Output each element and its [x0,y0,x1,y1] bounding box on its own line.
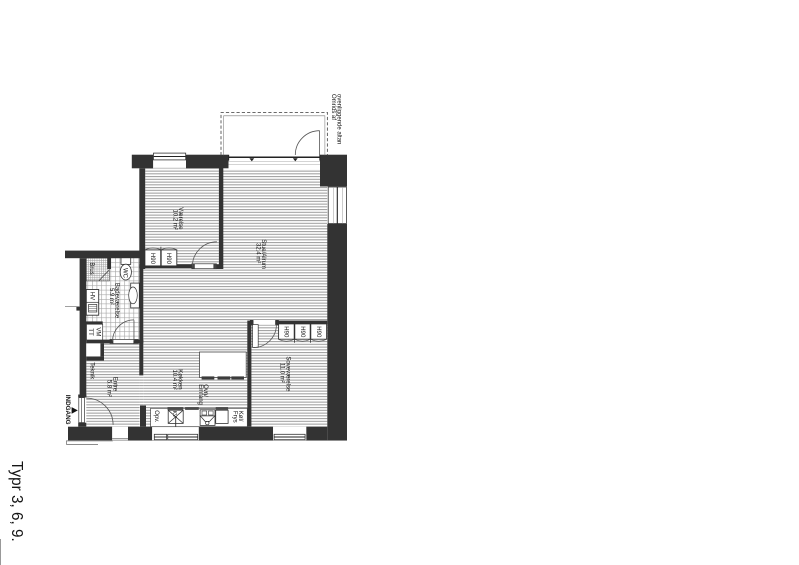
svg-text:Frys: Frys [232,411,238,423]
svg-text:VM: VM [94,327,100,336]
svg-text:10.2 m²: 10.2 m² [172,210,178,230]
svg-text:5.8 m²: 5.8 m² [106,380,112,397]
svg-text:KV: KV [171,411,177,418]
svg-text:H90: H90 [283,326,289,338]
svg-text:ovenliggende altan: ovenliggende altan [336,94,342,144]
svg-text:Emfang: Emfang [197,384,203,405]
svg-text:H90: H90 [149,253,155,265]
svg-text:Typr 3, 6, 9.: Typr 3, 6, 9. [8,461,25,542]
svg-text:TT: TT [87,328,93,336]
svg-text:INDGANG: INDGANG [64,395,71,425]
svg-text:10.4 m²: 10.4 m² [171,370,177,390]
svg-text:Brus: Brus [88,262,94,274]
svg-text:Omrids af: Omrids af [330,94,336,120]
svg-text:H90: H90 [165,253,171,265]
svg-text:WC: WC [122,268,128,279]
svg-text:H90: H90 [315,326,321,338]
svg-text:Opv.: Opv. [153,410,159,423]
svg-text:H90: H90 [299,326,305,338]
svg-text:5.9 m²: 5.9 m² [108,288,114,305]
svg-text:HV: HV [89,292,95,300]
svg-text:Teknik: Teknik [89,362,95,380]
svg-text:32.4 m²: 32.4 m² [254,243,260,263]
svg-text:11.0 m²: 11.0 m² [279,363,285,383]
